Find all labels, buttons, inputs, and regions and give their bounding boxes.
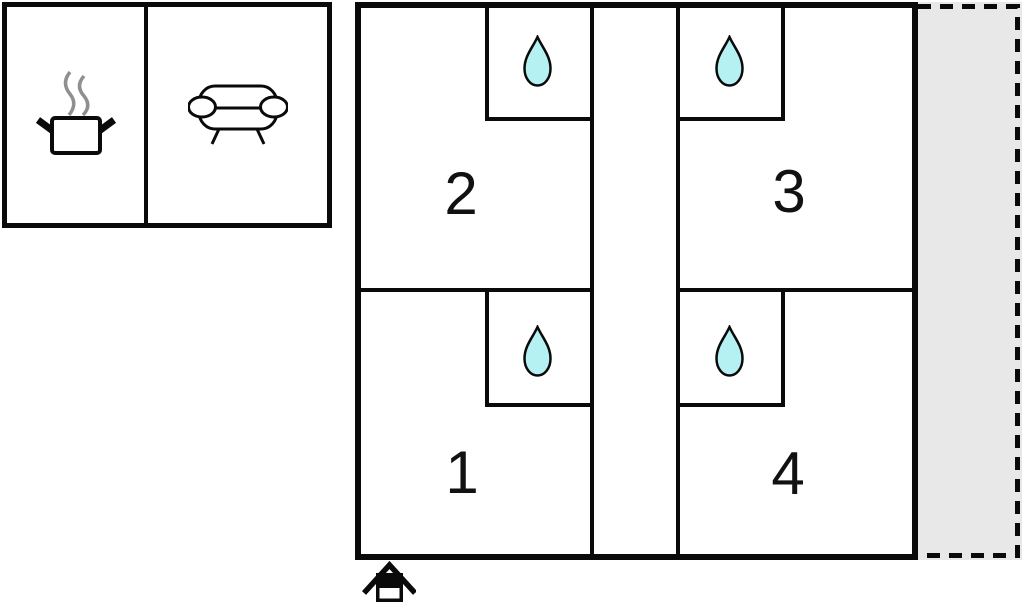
floor-plan: 2 3 1 4 [0, 0, 1024, 604]
room-label-2: 2 [444, 164, 477, 224]
kitchen-area [7, 7, 144, 223]
wall-divider-right [676, 288, 912, 292]
wall-bath-3-bottom [676, 117, 785, 121]
wall-divider-left [361, 288, 594, 292]
wall-bath-3-side [781, 8, 785, 121]
water-drop-icon [712, 325, 747, 378]
room-label-1: 1 [445, 443, 478, 503]
terrace-area [918, 2, 1022, 560]
water-drop-icon [520, 35, 555, 88]
wall-bath-1-bottom [485, 403, 594, 407]
room-label-3: 3 [772, 162, 805, 222]
wall-bath-1-side [485, 288, 489, 407]
living-room-area [148, 7, 327, 223]
wall-bath-4-side [781, 288, 785, 407]
entrance-house-icon [362, 560, 416, 604]
wall-corridor-right [676, 8, 680, 554]
water-drop-icon [520, 325, 555, 378]
terrace-dashed-border [918, 2, 1022, 560]
wall-bath-2-bottom [485, 117, 594, 121]
sofa-icon [188, 83, 288, 147]
amenity-block [2, 2, 332, 228]
wall-corridor-left [590, 8, 594, 554]
water-drop-icon [712, 35, 747, 88]
wall-bath-4-bottom [676, 403, 785, 407]
room-label-4: 4 [771, 444, 804, 504]
wall-bath-2-side [485, 8, 489, 121]
cooking-pot-icon [34, 69, 118, 161]
main-building: 2 3 1 4 [355, 2, 918, 560]
